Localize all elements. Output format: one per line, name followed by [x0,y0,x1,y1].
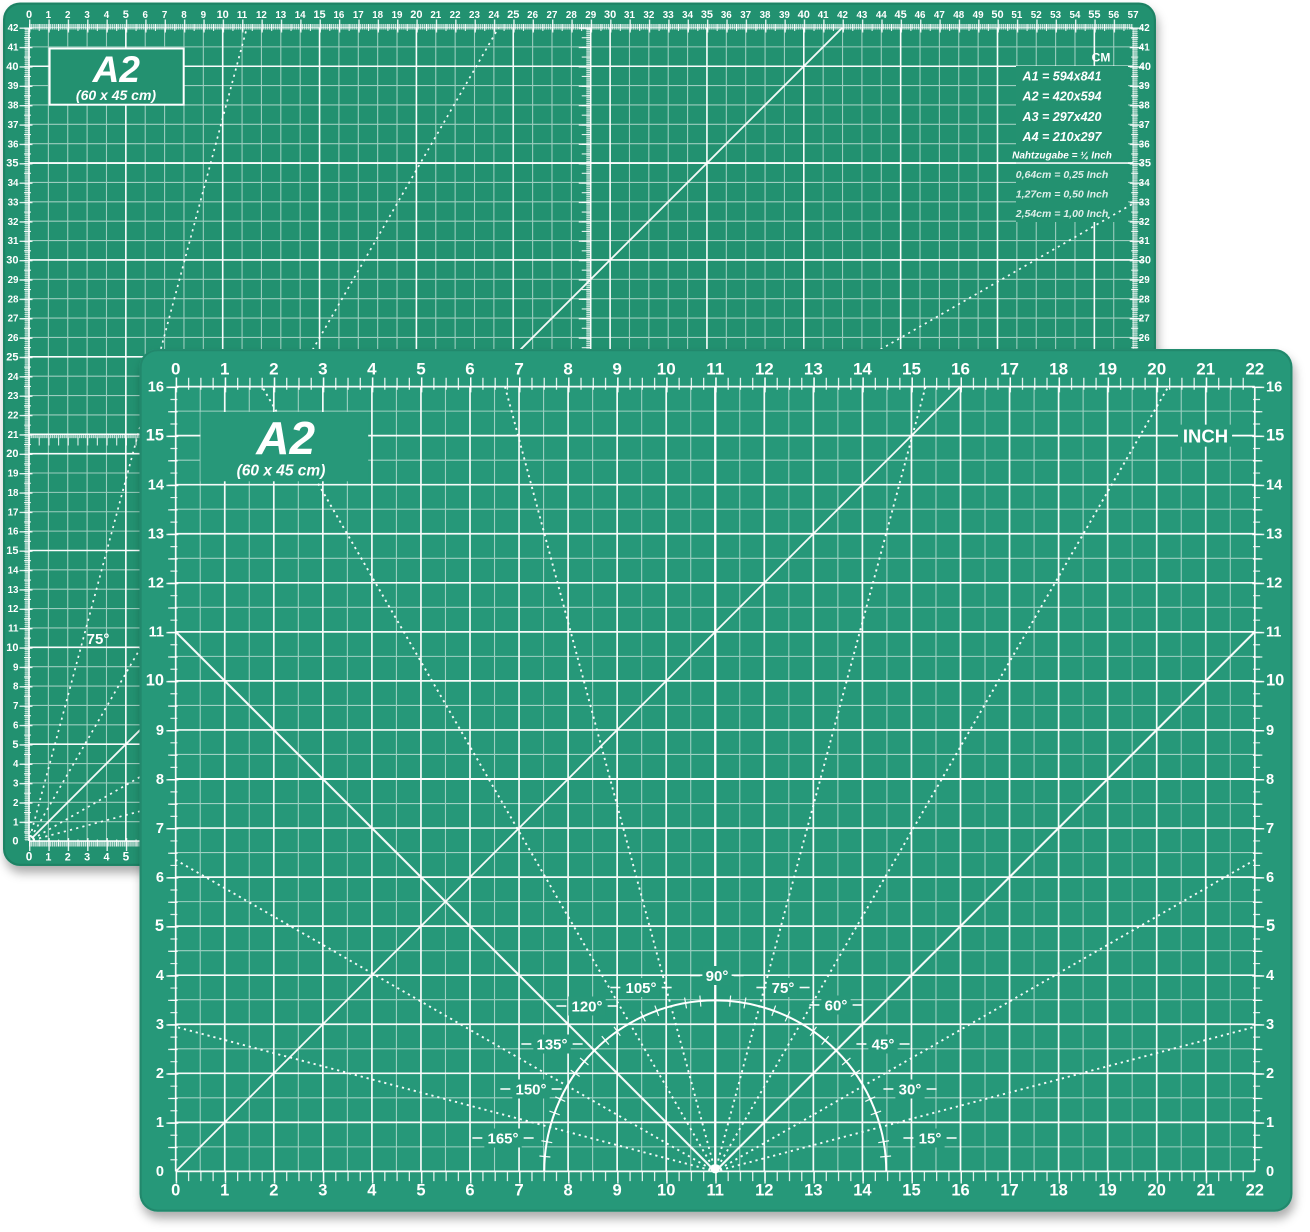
svg-text:INCH: INCH [1183,425,1228,446]
svg-text:2: 2 [13,798,19,809]
svg-text:21: 21 [1197,1182,1215,1200]
svg-text:A2: A2 [255,412,315,464]
svg-text:8: 8 [13,682,19,693]
svg-text:46: 46 [915,10,926,21]
svg-text:A4 = 210x297: A4 = 210x297 [1022,130,1103,144]
svg-text:10: 10 [217,9,229,21]
svg-text:30: 30 [604,9,616,21]
svg-text:38: 38 [760,10,771,21]
svg-text:15°: 15° [919,1130,942,1147]
svg-text:6: 6 [465,360,474,379]
svg-text:4: 4 [104,10,110,21]
svg-text:13: 13 [804,1182,822,1200]
svg-text:51: 51 [1011,10,1022,21]
svg-text:28: 28 [1139,294,1150,305]
svg-text:20: 20 [6,448,18,460]
svg-text:CM: CM [1092,51,1111,65]
svg-text:48: 48 [953,10,964,21]
svg-text:18: 18 [1049,1182,1067,1200]
svg-text:1,27cm = 0,50 Inch: 1,27cm = 0,50 Inch [1016,188,1109,200]
svg-text:36: 36 [8,139,19,150]
svg-text:A3 = 297x420: A3 = 297x420 [1022,110,1102,124]
svg-text:40: 40 [1139,61,1151,73]
svg-text:32: 32 [1139,217,1150,228]
svg-text:4: 4 [156,968,165,984]
svg-text:32: 32 [643,10,654,21]
svg-text:33: 33 [663,10,674,21]
svg-text:18: 18 [1049,360,1068,379]
svg-text:42: 42 [8,23,19,34]
svg-text:1: 1 [45,852,51,864]
svg-text:33: 33 [8,197,19,208]
svg-text:44: 44 [876,10,887,21]
svg-text:34: 34 [682,10,693,21]
svg-text:12: 12 [8,604,19,615]
svg-text:35: 35 [6,158,18,170]
svg-text:75°: 75° [772,980,795,997]
svg-text:16: 16 [8,527,19,538]
svg-text:54: 54 [1070,10,1081,21]
svg-text:38: 38 [8,101,19,112]
svg-text:47: 47 [934,10,945,21]
svg-text:(60 x 45 cm): (60 x 45 cm) [237,463,326,480]
svg-text:7: 7 [162,10,168,21]
svg-text:24: 24 [488,10,499,21]
svg-text:11: 11 [237,10,248,21]
svg-text:105°: 105° [625,980,656,997]
svg-text:24: 24 [8,372,19,383]
svg-text:11: 11 [149,625,164,641]
svg-text:49: 49 [973,10,984,21]
svg-text:39: 39 [779,10,790,21]
svg-text:23: 23 [8,391,19,402]
svg-text:7: 7 [514,1182,523,1200]
svg-text:10: 10 [657,360,676,379]
svg-text:42: 42 [837,10,848,21]
svg-text:2: 2 [1266,1066,1274,1082]
svg-text:5: 5 [1266,917,1275,935]
svg-text:22: 22 [1246,1182,1264,1200]
svg-text:18: 18 [8,488,19,499]
svg-text:17: 17 [8,507,19,518]
svg-text:45°: 45° [872,1036,895,1053]
svg-text:5: 5 [155,917,164,935]
svg-text:60°: 60° [825,997,848,1014]
svg-text:3: 3 [1266,1017,1274,1033]
svg-text:135°: 135° [536,1036,567,1053]
svg-text:0: 0 [171,360,180,379]
svg-text:14: 14 [853,1182,872,1200]
svg-text:Nahtzugabe = ¼ Inch: Nahtzugabe = ¼ Inch [1012,150,1112,161]
svg-text:7: 7 [514,360,523,379]
svg-text:4: 4 [103,852,109,864]
svg-text:16: 16 [951,360,970,379]
svg-text:10: 10 [6,642,18,654]
svg-text:12: 12 [256,10,267,21]
svg-text:14: 14 [853,360,872,379]
svg-text:1: 1 [156,1115,164,1131]
svg-text:0: 0 [1266,1164,1274,1180]
svg-text:16: 16 [148,379,164,395]
svg-text:8: 8 [1266,772,1274,788]
svg-text:2: 2 [269,1182,278,1200]
svg-text:9: 9 [1266,723,1274,739]
svg-text:5: 5 [123,850,130,864]
svg-text:34: 34 [1139,178,1150,189]
svg-text:11: 11 [706,360,724,379]
svg-text:41: 41 [8,42,19,53]
svg-text:29: 29 [1139,275,1150,286]
svg-text:1: 1 [1266,1115,1274,1131]
svg-text:3: 3 [13,779,19,790]
svg-text:22: 22 [450,10,461,21]
svg-text:22: 22 [1245,360,1264,379]
svg-text:165°: 165° [487,1130,518,1147]
svg-text:26: 26 [8,333,19,344]
svg-text:3: 3 [156,1017,164,1033]
svg-text:15: 15 [6,545,18,557]
svg-text:28: 28 [8,294,19,305]
svg-text:19: 19 [1098,360,1117,379]
svg-text:21: 21 [430,10,441,21]
svg-text:37: 37 [8,120,19,131]
svg-text:22: 22 [8,411,19,422]
svg-text:36: 36 [721,10,732,21]
svg-text:31: 31 [1139,236,1150,247]
svg-text:150°: 150° [515,1081,546,1098]
svg-text:0: 0 [156,1164,164,1180]
svg-text:19: 19 [8,469,19,480]
svg-text:26: 26 [527,10,538,21]
svg-text:8: 8 [181,10,187,21]
svg-text:6: 6 [156,870,164,886]
svg-text:41: 41 [818,10,829,21]
svg-text:16: 16 [951,1182,969,1200]
svg-text:A2 = 420x594: A2 = 420x594 [1022,90,1102,104]
svg-text:30: 30 [1139,255,1151,267]
svg-text:31: 31 [8,236,19,247]
svg-text:15: 15 [313,9,325,21]
svg-text:40: 40 [798,9,810,21]
svg-text:3: 3 [84,10,90,21]
svg-text:12: 12 [755,360,774,379]
svg-text:26: 26 [1139,333,1150,344]
svg-text:9: 9 [613,1182,622,1200]
svg-text:20: 20 [1147,360,1166,379]
svg-text:18: 18 [372,10,383,21]
svg-text:10: 10 [1266,672,1284,690]
svg-text:6: 6 [13,720,19,731]
svg-text:32: 32 [8,217,19,228]
svg-text:37: 37 [1139,120,1150,131]
svg-text:3: 3 [318,1182,327,1200]
svg-text:14: 14 [8,565,19,576]
svg-text:0: 0 [171,1182,180,1200]
svg-text:27: 27 [1139,314,1150,325]
svg-text:56: 56 [1108,10,1119,21]
svg-text:30°: 30° [899,1081,922,1098]
svg-text:7: 7 [1266,821,1274,837]
svg-text:16: 16 [1266,379,1282,395]
svg-text:5: 5 [123,9,129,21]
svg-text:8: 8 [563,360,572,379]
svg-text:5: 5 [416,1182,425,1200]
svg-text:11: 11 [8,624,19,635]
svg-text:31: 31 [624,10,635,21]
svg-text:A2: A2 [92,49,141,90]
svg-text:52: 52 [1031,10,1042,21]
svg-text:17: 17 [1000,1182,1018,1200]
svg-text:35: 35 [701,9,713,21]
svg-text:9: 9 [201,10,207,21]
svg-text:1: 1 [220,1182,229,1200]
svg-text:42: 42 [1139,23,1150,34]
svg-text:34: 34 [8,178,19,189]
svg-text:25: 25 [507,9,519,21]
svg-text:15: 15 [146,426,164,444]
svg-text:10: 10 [146,672,164,690]
svg-text:11: 11 [707,1182,724,1200]
svg-text:6: 6 [142,10,148,21]
svg-text:29: 29 [8,275,19,286]
svg-text:23: 23 [469,10,480,21]
svg-text:43: 43 [856,10,867,21]
svg-text:5: 5 [12,739,18,751]
svg-text:40: 40 [6,61,18,73]
svg-text:(60 x 45 cm): (60 x 45 cm) [76,87,156,103]
svg-text:15: 15 [1266,426,1284,444]
svg-text:0: 0 [12,836,18,848]
svg-text:25: 25 [6,351,18,363]
svg-text:12: 12 [1266,576,1282,592]
svg-text:1: 1 [220,360,229,379]
svg-text:33: 33 [1139,197,1150,208]
svg-text:2: 2 [65,10,71,21]
svg-text:2,54cm = 1,00 Inch: 2,54cm = 1,00 Inch [1015,208,1109,220]
svg-text:27: 27 [8,314,19,325]
svg-text:9: 9 [156,723,164,739]
svg-text:21: 21 [1196,360,1215,379]
svg-text:0,64cm = 0,25 Inch: 0,64cm = 0,25 Inch [1016,169,1109,181]
svg-text:120°: 120° [571,998,602,1015]
svg-text:16: 16 [333,10,344,21]
svg-text:37: 37 [740,10,751,21]
svg-text:2: 2 [65,852,71,864]
svg-text:11: 11 [1266,625,1281,641]
svg-text:6: 6 [465,1182,474,1200]
svg-text:A1 = 594x841: A1 = 594x841 [1022,69,1102,83]
svg-text:30: 30 [6,255,18,267]
svg-text:14: 14 [1266,478,1283,494]
svg-text:13: 13 [8,585,19,596]
svg-text:3: 3 [84,852,90,864]
svg-text:39: 39 [8,81,19,92]
svg-text:38: 38 [1139,101,1150,112]
svg-text:14: 14 [295,10,306,21]
svg-text:53: 53 [1050,10,1061,21]
svg-text:36: 36 [1139,139,1150,150]
svg-text:7: 7 [13,701,19,712]
svg-text:3: 3 [318,360,327,379]
svg-text:90°: 90° [706,968,729,985]
svg-text:20: 20 [1148,1182,1166,1200]
svg-text:9: 9 [13,662,19,673]
svg-text:4: 4 [367,360,377,379]
svg-text:4: 4 [13,759,19,770]
svg-text:28: 28 [566,10,577,21]
svg-text:0: 0 [26,850,33,864]
svg-text:1: 1 [13,817,19,828]
svg-text:9: 9 [612,360,621,379]
svg-text:13: 13 [804,360,823,379]
svg-text:39: 39 [1139,81,1150,92]
svg-text:41: 41 [1139,42,1150,53]
svg-text:13: 13 [148,527,164,543]
svg-text:55: 55 [1088,9,1100,21]
svg-text:27: 27 [547,10,558,21]
svg-text:7: 7 [156,821,164,837]
svg-text:6: 6 [1266,870,1274,886]
svg-text:17: 17 [1000,360,1019,379]
svg-text:50: 50 [991,9,1003,21]
svg-text:13: 13 [1266,527,1282,543]
svg-text:29: 29 [585,10,596,21]
svg-text:2: 2 [269,360,278,379]
svg-text:5: 5 [416,360,425,379]
svg-text:10: 10 [657,1182,675,1200]
svg-text:12: 12 [148,576,164,592]
svg-text:15: 15 [902,360,921,379]
svg-text:1: 1 [46,10,52,21]
svg-text:19: 19 [392,10,403,21]
svg-text:17: 17 [353,10,364,21]
svg-text:35: 35 [1139,158,1151,170]
svg-text:12: 12 [755,1182,773,1200]
svg-text:19: 19 [1098,1182,1116,1200]
svg-text:8: 8 [156,772,164,788]
svg-text:4: 4 [367,1182,377,1200]
svg-text:15: 15 [902,1182,920,1200]
svg-text:57: 57 [1128,10,1139,21]
svg-text:45: 45 [895,9,907,21]
svg-text:4: 4 [1266,968,1275,984]
svg-text:14: 14 [148,478,165,494]
svg-text:20: 20 [410,9,422,21]
svg-text:0: 0 [26,9,32,21]
svg-text:75°: 75° [87,631,110,648]
svg-text:2: 2 [156,1066,164,1082]
svg-text:13: 13 [275,10,286,21]
svg-text:21: 21 [8,430,19,441]
svg-text:8: 8 [564,1182,573,1200]
